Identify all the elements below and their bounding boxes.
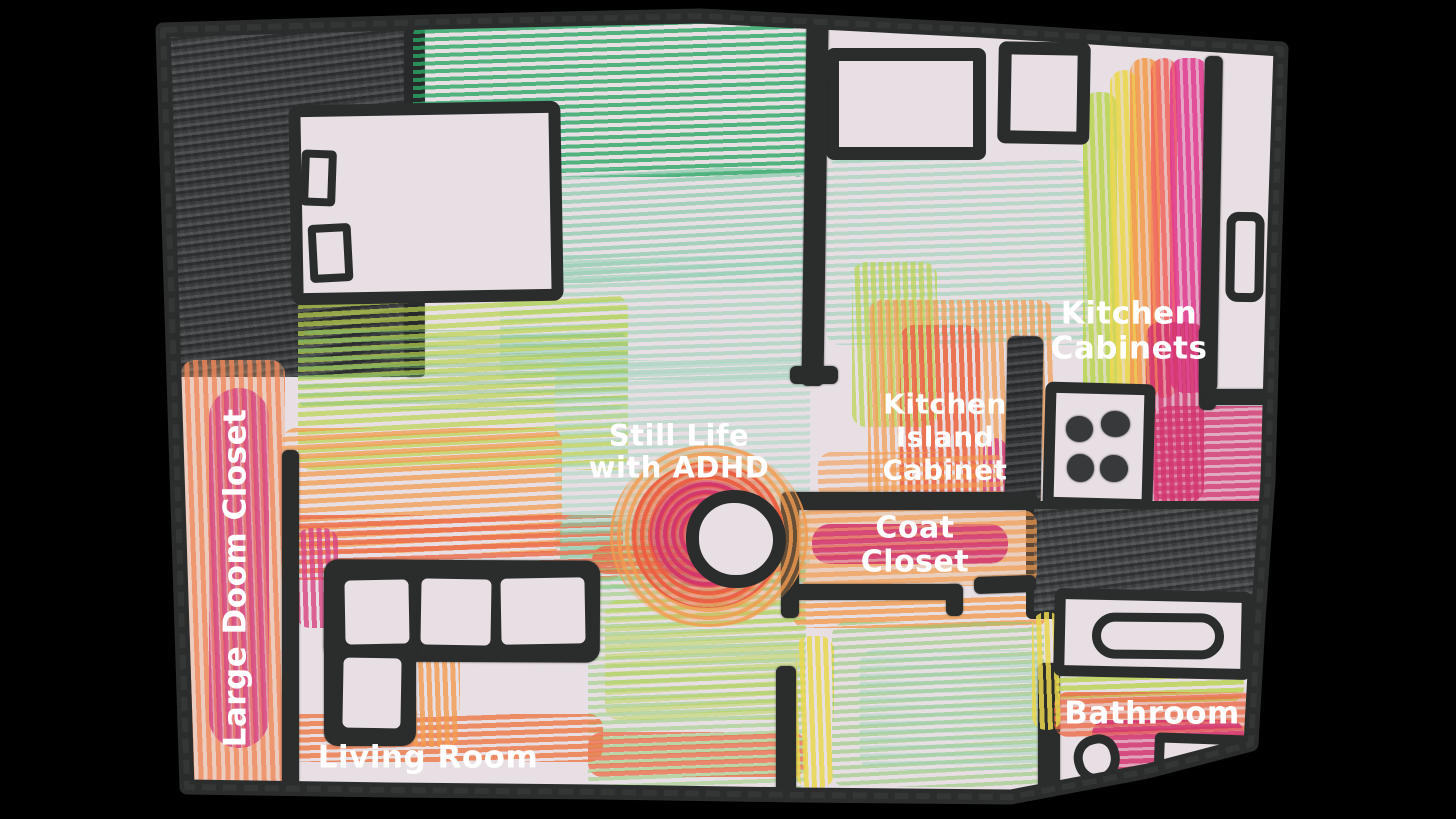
living-room-red-band-bottom bbox=[588, 732, 806, 777]
bed-pillow bbox=[308, 223, 354, 283]
stove-burner bbox=[1100, 455, 1128, 482]
hallway-teal bbox=[860, 650, 1040, 770]
label-living-room: Living Room bbox=[318, 741, 539, 776]
stove bbox=[1042, 382, 1155, 511]
bathtub-basin bbox=[1092, 612, 1224, 659]
coat-closet-wall-stub bbox=[946, 584, 963, 616]
coat-closet-wall-bottom-b bbox=[974, 575, 1037, 594]
crayon-floor-plan: Large Doom Closet Still Life with ADHD K… bbox=[0, 0, 1456, 819]
label-large-doom-closet: Large Doom Closet bbox=[219, 409, 254, 748]
label-line: Island bbox=[883, 420, 1008, 453]
counter-magenta-horizontal bbox=[1155, 406, 1277, 504]
sofa-cushion bbox=[500, 577, 585, 644]
label-kitchen-cabinets: Kitchen Cabinets bbox=[1051, 296, 1208, 365]
label-line: with ADHD bbox=[589, 452, 770, 484]
bathroom-sink bbox=[1153, 732, 1253, 793]
doom-closet-wall bbox=[282, 450, 299, 788]
bedroom-kitchen-wall bbox=[801, 24, 828, 386]
hallway-left-wall bbox=[776, 666, 796, 793]
coat-closet-wall-top bbox=[781, 492, 1037, 510]
bed-pillow bbox=[300, 149, 337, 206]
label-coat-closet: Coat Closet bbox=[861, 511, 969, 578]
label-line: Closet bbox=[861, 545, 969, 579]
bedroom-kitchen-wall-foot bbox=[790, 366, 838, 384]
coat-closet-wall-bottom-a bbox=[790, 584, 962, 600]
kitchen-island-bar bbox=[1005, 336, 1044, 509]
stove-burner bbox=[1066, 416, 1093, 442]
sofa-cushion bbox=[344, 579, 409, 644]
label-line: Cabinet bbox=[883, 454, 1008, 487]
sofa-chaise-cushion bbox=[342, 657, 401, 728]
label-line: Kitchen bbox=[1051, 296, 1208, 331]
floor-plan-content: Large Doom Closet Still Life with ADHD K… bbox=[0, 0, 1456, 819]
counter-l-wall-horizontal bbox=[1204, 389, 1284, 405]
fridge-handle bbox=[1225, 212, 1265, 303]
label-line: Coat bbox=[861, 511, 969, 545]
stove-burner bbox=[1067, 454, 1094, 482]
sofa-cushion bbox=[420, 578, 491, 645]
label-line: Kitchen bbox=[883, 387, 1008, 420]
kitchen-counter-1 bbox=[826, 48, 986, 160]
hallway-yellow-strip bbox=[796, 636, 834, 788]
stove-burner bbox=[1101, 411, 1130, 437]
label-still-life: Still Life with ADHD bbox=[589, 420, 770, 485]
round-table bbox=[686, 490, 786, 588]
label-bathroom: Bathroom bbox=[1064, 697, 1240, 732]
label-line: Still Life bbox=[589, 420, 770, 452]
label-line: Cabinets bbox=[1051, 331, 1208, 366]
kitchen-counter-2 bbox=[997, 41, 1091, 145]
label-kitchen-island-cabinet: Kitchen Island Cabinet bbox=[883, 387, 1008, 486]
